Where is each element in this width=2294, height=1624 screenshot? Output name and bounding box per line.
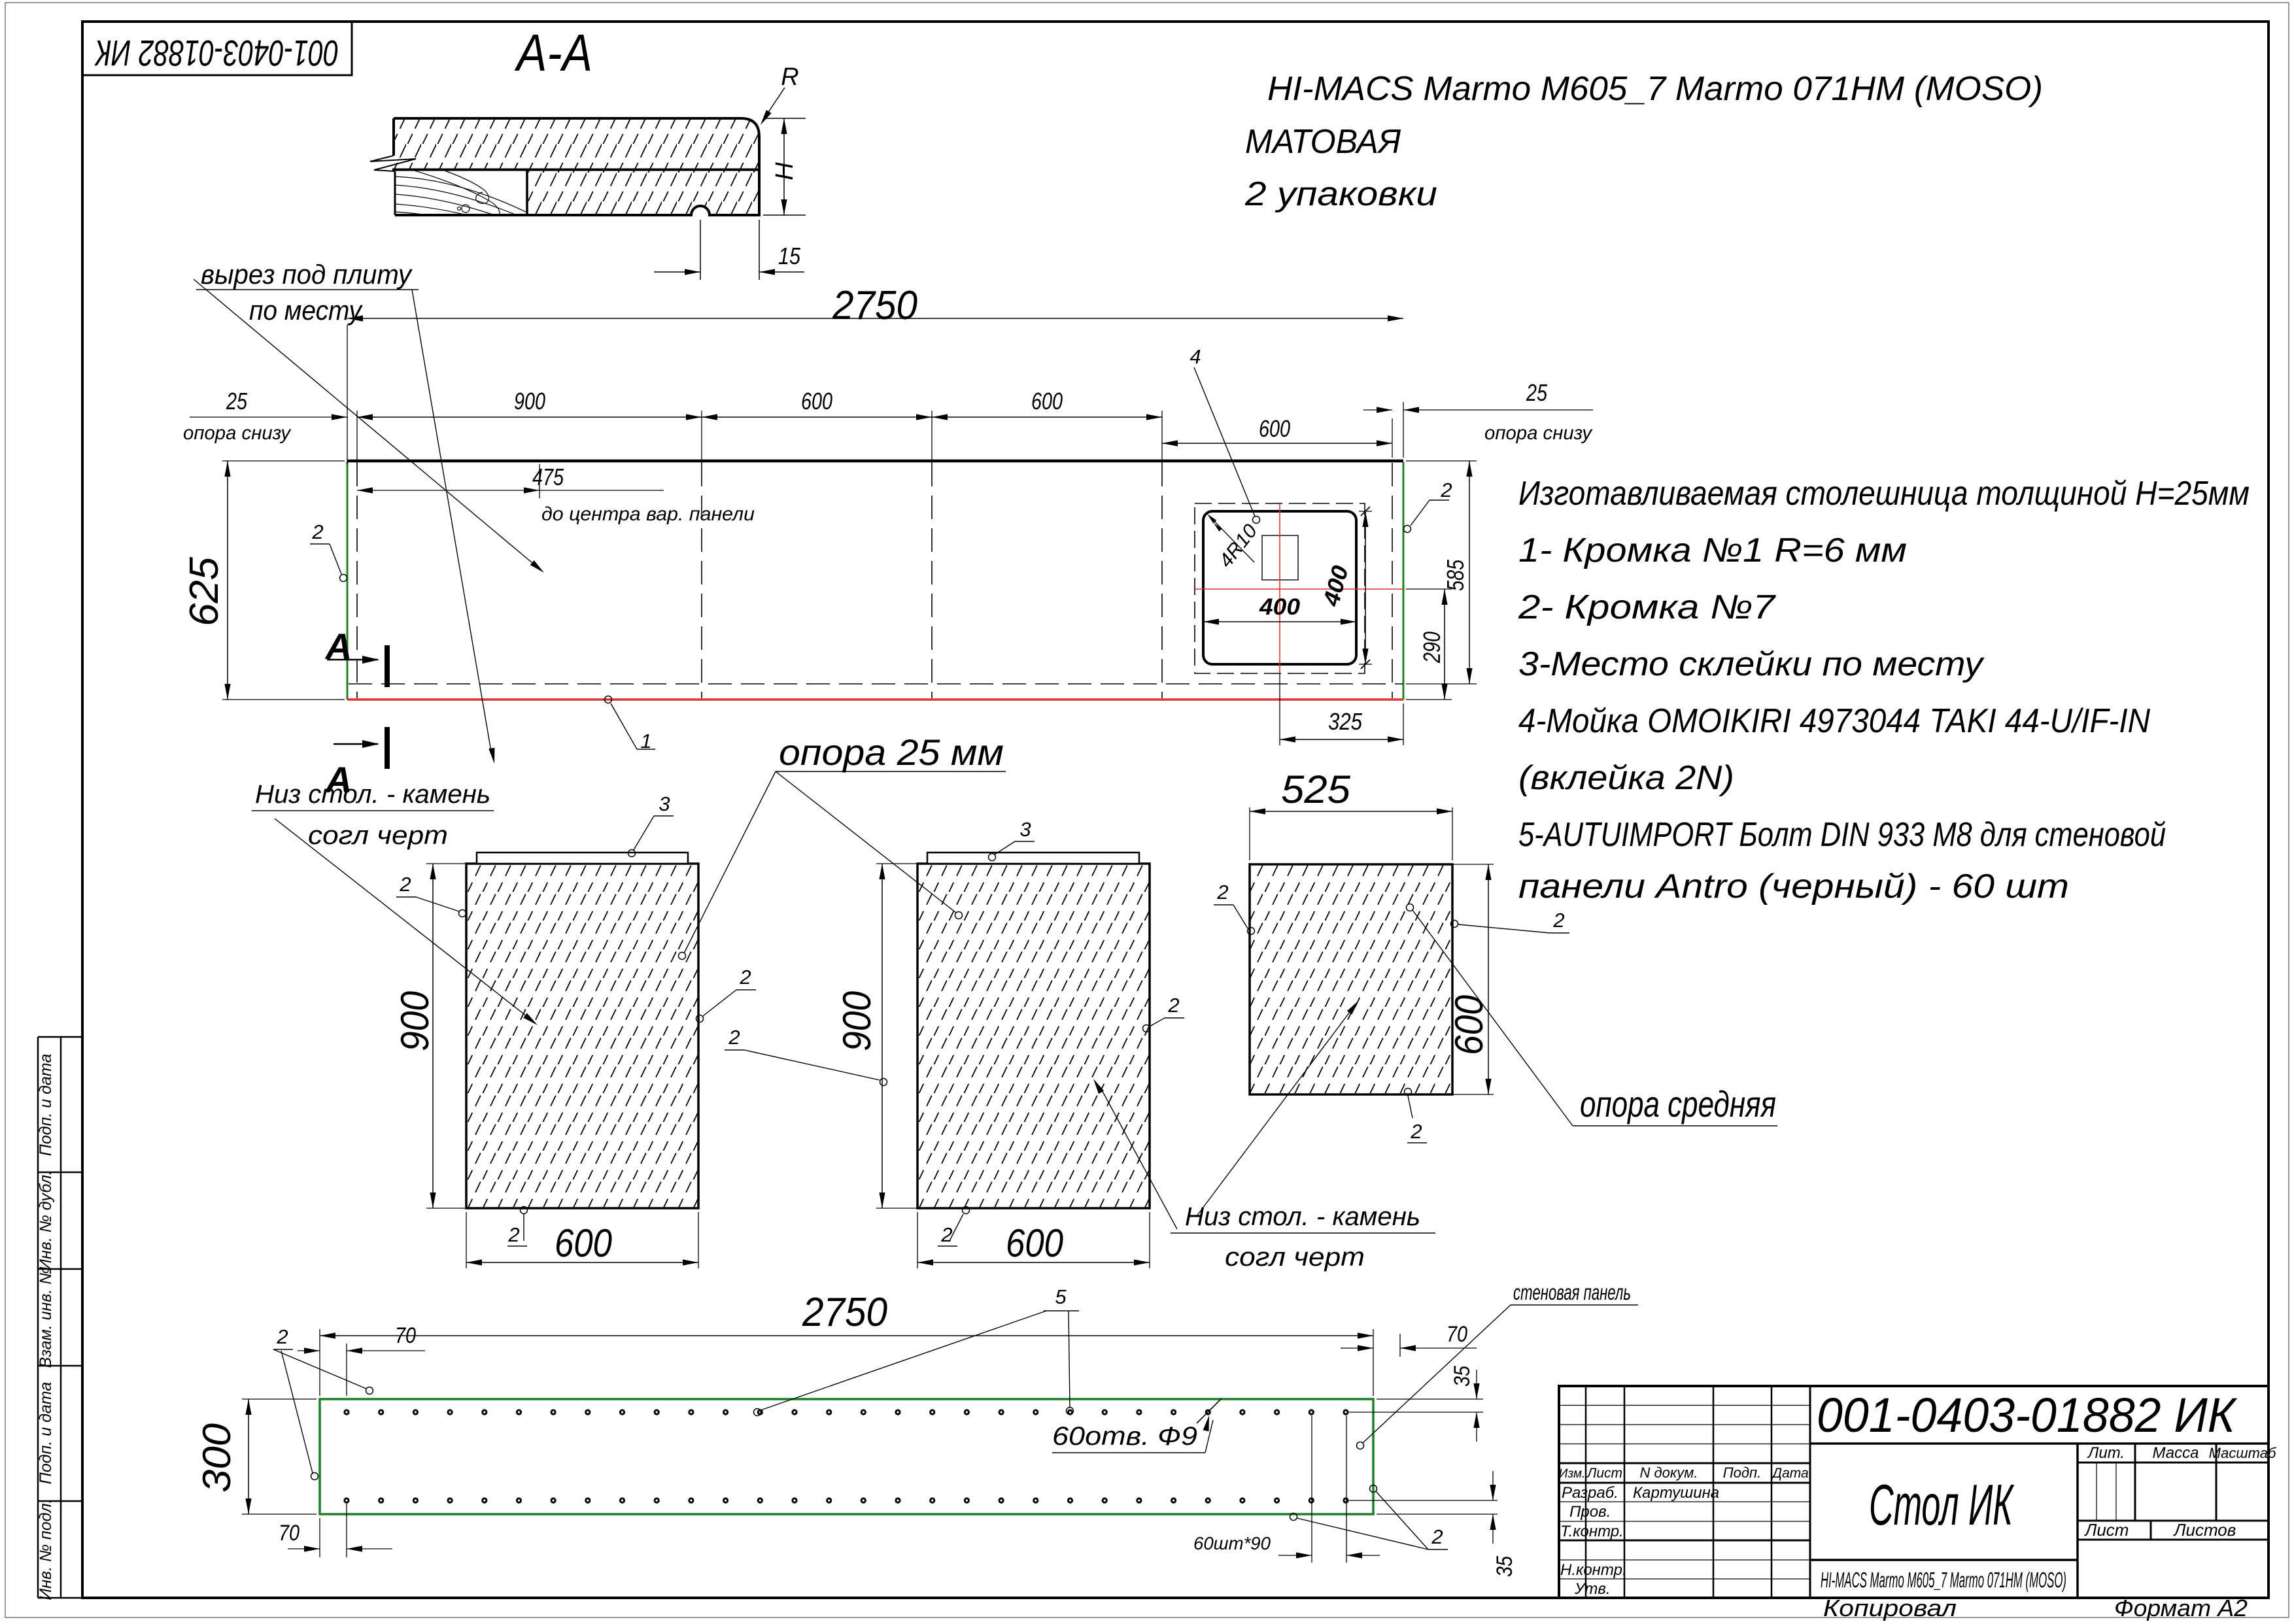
svg-text:2: 2 bbox=[1440, 479, 1452, 501]
svg-text:001-0403-01882 ИК: 001-0403-01882 ИК bbox=[1817, 1388, 2238, 1442]
svg-text:Лист: Лист bbox=[2084, 1520, 2129, 1540]
svg-text:2: 2 bbox=[1167, 994, 1179, 1017]
svg-text:по месту: по месту bbox=[249, 295, 364, 326]
svg-text:Низ стол. - камень: Низ стол. - камень bbox=[255, 780, 490, 809]
svg-text:Формат А2: Формат А2 bbox=[2114, 1595, 2248, 1621]
svg-text:Инв. № подл.: Инв. № подл. bbox=[37, 1498, 55, 1600]
svg-text:R: R bbox=[781, 63, 798, 91]
svg-text:3: 3 bbox=[1019, 818, 1031, 841]
svg-text:Н.контр.: Н.контр. bbox=[1560, 1561, 1627, 1579]
svg-text:Подп.: Подп. bbox=[1723, 1464, 1762, 1481]
svg-text:900: 900 bbox=[393, 991, 437, 1051]
svg-text:HI-MACS Marmo M605_7 Marmo 071: HI-MACS Marmo M605_7 Marmo 071HM (MOSO) bbox=[1821, 1568, 2066, 1592]
svg-text:2750: 2750 bbox=[832, 283, 917, 328]
svg-text:A: A bbox=[324, 626, 352, 667]
svg-text:25: 25 bbox=[1526, 379, 1548, 406]
svg-text:35: 35 bbox=[1450, 1366, 1475, 1387]
svg-text:Пров.: Пров. bbox=[1569, 1503, 1611, 1521]
svg-text:3-Место склейки по месту: 3-Место склейки по месту bbox=[1518, 645, 1985, 683]
svg-text:2: 2 bbox=[739, 966, 751, 989]
svg-text:2: 2 bbox=[728, 1026, 740, 1049]
svg-text:панели Antro (черный) - 60 шт: панели Antro (черный) - 60 шт bbox=[1518, 868, 2069, 905]
svg-text:5: 5 bbox=[1055, 1285, 1067, 1308]
svg-text:290: 290 bbox=[1418, 632, 1445, 664]
svg-text:600: 600 bbox=[1259, 415, 1290, 442]
svg-text:4-Мойка OMOIKIRI 4973044 TAKI: 4-Мойка OMOIKIRI 4973044 TAKI 44-U/IF-IN bbox=[1518, 702, 2150, 740]
svg-text:2: 2 bbox=[507, 1223, 519, 1246]
svg-text:2: 2 bbox=[1552, 909, 1564, 932]
svg-text:2: 2 bbox=[1410, 1120, 1422, 1143]
svg-text:600: 600 bbox=[1447, 995, 1491, 1055]
svg-text:до центра вар. панели: до центра вар. панели bbox=[541, 503, 755, 525]
svg-text:001-0403-01882 ИК: 001-0403-01882 ИК bbox=[94, 33, 339, 74]
svg-text:2: 2 bbox=[940, 1223, 952, 1246]
svg-text:HI-MACS Marmo M605_7 Marmo 071: HI-MACS Marmo M605_7 Marmo 071HM (MOSO) bbox=[1267, 70, 2043, 108]
svg-text:900: 900 bbox=[835, 991, 879, 1051]
svg-text:525: 525 bbox=[1281, 768, 1351, 811]
svg-text:опора 25 мм: опора 25 мм bbox=[779, 732, 1004, 773]
svg-text:H: H bbox=[771, 162, 798, 180]
svg-text:2- Кромка №7: 2- Кромка №7 bbox=[1518, 588, 1777, 626]
svg-text:Инв. № дубл.: Инв. № дубл. bbox=[37, 1170, 55, 1271]
svg-text:Лист: Лист bbox=[1586, 1466, 1622, 1481]
svg-text:2: 2 bbox=[311, 520, 323, 543]
svg-text:600: 600 bbox=[801, 388, 832, 414]
svg-text:70: 70 bbox=[395, 1323, 416, 1348]
svg-text:Т.контр.: Т.контр. bbox=[1560, 1523, 1624, 1540]
svg-text:согл черт: согл черт bbox=[1225, 1243, 1365, 1272]
svg-text:600: 600 bbox=[1031, 388, 1063, 414]
svg-text:Лит.: Лит. bbox=[2087, 1444, 2125, 1462]
svg-text:625: 625 bbox=[182, 556, 227, 626]
svg-text:2: 2 bbox=[1216, 881, 1228, 904]
svg-text:Низ стол. - камень: Низ стол. - камень bbox=[1185, 1202, 1420, 1231]
svg-text:60шт*90: 60шт*90 bbox=[1193, 1533, 1271, 1553]
svg-text:Стол ИК: Стол ИК bbox=[1869, 1472, 2014, 1537]
svg-text:60отв. Ф9: 60отв. Ф9 bbox=[1052, 1422, 1197, 1451]
svg-text:Копировал: Копировал bbox=[1823, 1595, 1957, 1621]
svg-text:2: 2 bbox=[276, 1325, 288, 1348]
svg-text:2: 2 bbox=[399, 873, 411, 896]
svg-text:585: 585 bbox=[1442, 559, 1469, 591]
svg-text:Взам. инв. №: Взам. инв. № bbox=[37, 1267, 55, 1368]
svg-text:N докум.: N докум. bbox=[1640, 1464, 1698, 1481]
svg-text:4: 4 bbox=[1190, 345, 1201, 368]
svg-text:стеновая панель: стеновая панель bbox=[1513, 1280, 1631, 1304]
svg-text:2750: 2750 bbox=[802, 1290, 887, 1335]
svg-text:3: 3 bbox=[659, 792, 670, 815]
svg-text:15: 15 bbox=[778, 243, 801, 269]
svg-text:600: 600 bbox=[1006, 1221, 1063, 1265]
svg-text:1- Кромка №1 R=6 мм: 1- Кромка №1 R=6 мм bbox=[1518, 532, 1907, 569]
svg-text:опора снизу: опора снизу bbox=[183, 422, 292, 444]
svg-text:вырез под плиту: вырез под плиту bbox=[201, 259, 413, 290]
svg-text:опора снизу: опора снизу bbox=[1484, 422, 1593, 444]
svg-text:Подп. и дата: Подп. и дата bbox=[37, 1054, 55, 1157]
svg-text:35: 35 bbox=[1492, 1556, 1517, 1577]
svg-text:475: 475 bbox=[532, 464, 564, 490]
svg-text:Дата: Дата bbox=[1771, 1466, 1808, 1481]
svg-text:Изготавливаемая столешница тол: Изготавливаемая столешница толщиной Н=25… bbox=[1518, 475, 2250, 513]
svg-text:Листов: Листов bbox=[2173, 1520, 2236, 1540]
svg-text:5-AUTUIMPORT Болт DIN 933 M8 д: 5-AUTUIMPORT Болт DIN 933 M8 для стеново… bbox=[1518, 816, 2166, 854]
svg-text:Подп. и дата: Подп. и дата bbox=[37, 1382, 55, 1485]
svg-text:300: 300 bbox=[195, 1423, 239, 1493]
svg-text:Утв.: Утв. bbox=[1574, 1580, 1611, 1598]
svg-text:опора средняя: опора средняя bbox=[1580, 1083, 1776, 1125]
svg-text:600: 600 bbox=[555, 1221, 612, 1265]
svg-text:Масса: Масса bbox=[2153, 1444, 2199, 1462]
svg-text:325: 325 bbox=[1328, 708, 1363, 735]
svg-text:70: 70 bbox=[279, 1521, 300, 1546]
svg-text:МАТОВАЯ: МАТОВАЯ bbox=[1245, 123, 1401, 161]
svg-text:900: 900 bbox=[514, 388, 545, 414]
svg-text:70: 70 bbox=[1447, 1322, 1467, 1347]
svg-text:Картушина: Картушина bbox=[1633, 1484, 1719, 1502]
svg-text:Изм.: Изм. bbox=[1559, 1467, 1586, 1481]
svg-text:2: 2 bbox=[1431, 1525, 1443, 1548]
svg-text:согл черт: согл черт bbox=[308, 821, 448, 850]
svg-text:25: 25 bbox=[226, 388, 248, 414]
svg-text:Разраб.: Разраб. bbox=[1562, 1484, 1618, 1502]
svg-text:2 упаковки: 2 упаковки bbox=[1244, 175, 1437, 213]
svg-text:(вклейка 2N): (вклейка 2N) bbox=[1518, 759, 1734, 797]
svg-text:400: 400 bbox=[1259, 594, 1301, 620]
svg-text:A-A: A-A bbox=[515, 24, 592, 82]
svg-text:Масштаб: Масштаб bbox=[2209, 1445, 2277, 1461]
svg-text:1: 1 bbox=[640, 730, 651, 753]
